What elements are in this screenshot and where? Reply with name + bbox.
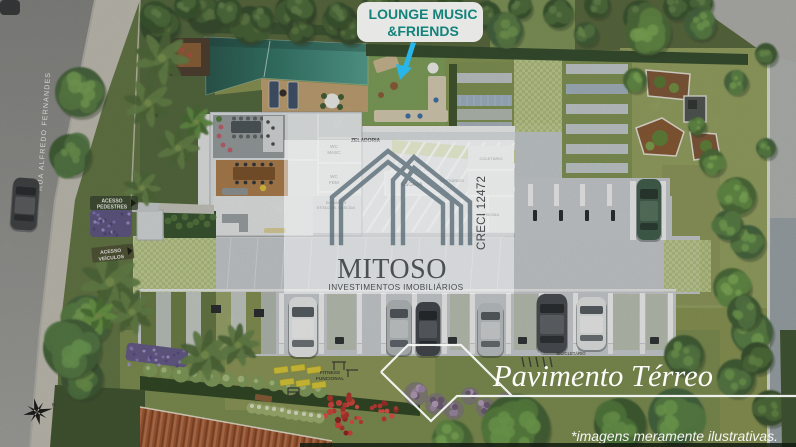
svg-text:MITOSO: MITOSO <box>337 254 447 285</box>
svg-text:*imagens meramente ilustrativa: *imagens meramente ilustrativas. <box>571 428 778 444</box>
svg-text:&FRIENDS: &FRIENDS <box>387 23 459 39</box>
svg-text:CRECI 12472: CRECI 12472 <box>476 176 488 250</box>
svg-text:Pavimento Térreo: Pavimento Térreo <box>492 359 713 393</box>
svg-text:INVESTIMENTOS IMOBILIÁRIOS: INVESTIMENTOS IMOBILIÁRIOS <box>329 282 464 292</box>
svg-text:LOUNGE MUSIC: LOUNGE MUSIC <box>369 6 478 22</box>
